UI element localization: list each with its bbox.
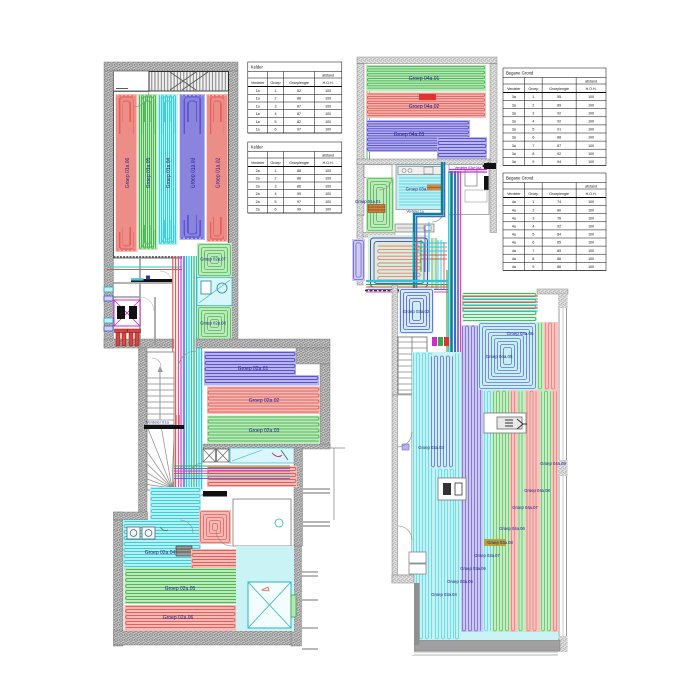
svg-text:4: 4 (532, 224, 534, 228)
svg-text:100: 100 (325, 169, 331, 173)
svg-text:Groeplengte: Groeplengte (289, 161, 309, 165)
svg-text:88: 88 (557, 136, 561, 140)
svg-text:87: 87 (297, 104, 301, 108)
svg-text:100: 100 (588, 257, 594, 261)
svg-text:Kelder: Kelder (251, 144, 264, 149)
svg-text:100: 100 (588, 208, 594, 212)
svg-text:Groep 01a.05: Groep 01a.05 (146, 157, 152, 188)
svg-text:65: 65 (557, 241, 561, 245)
svg-text:Groep: Groep (528, 192, 538, 196)
svg-text:H.O.H.: H.O.H. (323, 161, 334, 165)
svg-text:82: 82 (297, 120, 301, 124)
svg-text:100: 100 (325, 97, 331, 101)
svg-text:3a: 3a (512, 160, 516, 164)
svg-text:100: 100 (588, 152, 594, 156)
svg-text:100: 100 (588, 160, 594, 164)
svg-text:Groep 02a.07: Groep 02a.07 (200, 257, 226, 262)
svg-text:Groep 02a.04: Groep 02a.04 (145, 550, 176, 556)
svg-text:Groep 03a.08: Groep 03a.08 (487, 540, 513, 545)
svg-text:6: 6 (275, 128, 277, 132)
svg-text:100: 100 (325, 208, 331, 212)
svg-text:7: 7 (532, 249, 534, 253)
svg-text:3a: 3a (512, 95, 516, 99)
svg-text:Groeplengte: Groeplengte (549, 192, 569, 196)
svg-text:87: 87 (297, 112, 301, 116)
svg-text:Groep 04a.02: Groep 04a.02 (409, 104, 440, 110)
svg-text:Groep 01a.06: Groep 01a.06 (125, 157, 131, 188)
svg-text:4a: 4a (512, 216, 516, 220)
svg-text:2a: 2a (256, 169, 260, 173)
svg-text:Groep 03a.03: Groep 03a.03 (418, 445, 444, 450)
svg-text:Groep 01a.04: Groep 01a.04 (166, 157, 172, 188)
svg-text:Verdeler 01a: Verdeler 01a (146, 420, 169, 425)
svg-text:Groep 02a.03: Groep 02a.03 (249, 428, 280, 434)
svg-text:2a: 2a (256, 200, 260, 204)
svg-text:Groep 04a.08: Groep 04a.08 (524, 488, 550, 493)
svg-text:4a: 4a (512, 249, 516, 253)
svg-text:Groep 03a.02: Groep 03a.02 (403, 309, 430, 314)
svg-text:Groep 04a.06: Groep 04a.06 (507, 331, 534, 336)
svg-text:Groep 02a.01: Groep 02a.01 (238, 366, 269, 372)
svg-text:1: 1 (275, 169, 277, 173)
svg-text:Groep 04a.07: Groep 04a.07 (512, 505, 538, 510)
svg-text:3: 3 (532, 216, 534, 220)
svg-text:99: 99 (297, 208, 301, 212)
svg-text:1a: 1a (256, 97, 260, 101)
svg-text:3a: 3a (512, 144, 516, 148)
svg-text:100: 100 (588, 119, 594, 123)
svg-text:76: 76 (557, 216, 561, 220)
svg-text:3a: 3a (512, 128, 516, 132)
svg-text:afstand: afstand (322, 154, 334, 158)
svg-text:100: 100 (325, 200, 331, 204)
svg-text:3: 3 (275, 184, 277, 188)
svg-text:5: 5 (532, 128, 534, 132)
svg-text:88: 88 (297, 97, 301, 101)
svg-text:100: 100 (588, 200, 594, 204)
svg-text:5: 5 (532, 233, 534, 237)
svg-text:Begane Grond: Begane Grond (506, 175, 534, 180)
svg-text:89: 89 (557, 103, 561, 107)
svg-text:100: 100 (325, 184, 331, 188)
svg-text:afstand: afstand (585, 185, 597, 189)
svg-text:1a: 1a (256, 128, 260, 132)
svg-text:86: 86 (557, 265, 561, 269)
svg-text:100: 100 (588, 136, 594, 140)
svg-text:100: 100 (325, 192, 331, 196)
svg-text:Verdeler: Verdeler (507, 192, 521, 196)
svg-text:Groep 01a.03: Groep 01a.03 (190, 157, 196, 188)
svg-text:100: 100 (325, 177, 331, 181)
svg-text:Groep: Groep (528, 87, 538, 91)
svg-text:6: 6 (532, 136, 534, 140)
svg-text:2: 2 (532, 103, 534, 107)
svg-text:100: 100 (588, 95, 594, 99)
svg-text:100: 100 (588, 111, 594, 115)
svg-text:100: 100 (588, 241, 594, 245)
svg-text:Groep 03a.05: Groep 03a.05 (447, 579, 473, 584)
svg-text:9: 9 (532, 265, 534, 269)
svg-text:Groep 04a.06: Groep 04a.06 (499, 526, 525, 531)
svg-text:Groep 04a.09: Groep 04a.09 (540, 461, 566, 466)
svg-text:5: 5 (275, 200, 277, 204)
svg-text:Groep: Groep (271, 81, 281, 85)
svg-text:Verdeler: Verdeler (507, 87, 521, 91)
svg-text:Groep 04a.05: Groep 04a.05 (486, 354, 513, 359)
svg-text:100: 100 (588, 144, 594, 148)
svg-text:H.O.H.: H.O.H. (586, 192, 597, 196)
svg-text:92: 92 (557, 152, 561, 156)
svg-text:100: 100 (588, 265, 594, 269)
svg-text:100: 100 (588, 249, 594, 253)
svg-text:Groep 04a.01: Groep 04a.01 (409, 76, 440, 82)
svg-text:afstand: afstand (585, 80, 597, 84)
svg-text:Groep 02a.08: Groep 02a.08 (200, 321, 226, 326)
svg-text:6: 6 (532, 241, 534, 245)
svg-text:5: 5 (275, 120, 277, 124)
svg-text:3a: 3a (512, 111, 516, 115)
svg-text:3a: 3a (512, 136, 516, 140)
svg-text:2: 2 (532, 208, 534, 212)
svg-text:Groep 02a.06: Groep 02a.06 (163, 615, 194, 621)
svg-text:100: 100 (325, 120, 331, 124)
svg-text:Verdeler: Verdeler (251, 161, 265, 165)
svg-text:2a: 2a (256, 177, 260, 181)
svg-text:2a: 2a (256, 184, 260, 188)
svg-text:Groep 03a.06: Groep 03a.06 (460, 566, 486, 571)
svg-text:1: 1 (532, 200, 534, 204)
svg-text:1a: 1a (256, 112, 260, 116)
svg-text:Groep 03a.04: Groep 03a.04 (431, 592, 457, 597)
svg-text:86: 86 (297, 184, 301, 188)
svg-text:86: 86 (557, 257, 561, 261)
svg-text:7: 7 (532, 144, 534, 148)
svg-text:4: 4 (532, 119, 534, 123)
svg-text:8: 8 (532, 152, 534, 156)
svg-text:100: 100 (588, 233, 594, 237)
svg-text:100: 100 (325, 128, 331, 132)
svg-text:1: 1 (532, 95, 534, 99)
svg-text:4: 4 (275, 192, 277, 196)
svg-text:Groep: Groep (271, 161, 281, 165)
svg-text:Groep 01a.01: Groep 01a.01 (355, 199, 381, 204)
svg-text:3a: 3a (512, 119, 516, 123)
svg-text:H.O.H.: H.O.H. (323, 81, 334, 85)
svg-text:100: 100 (325, 112, 331, 116)
svg-text:92: 92 (557, 119, 561, 123)
svg-text:Verdeler: Verdeler (251, 81, 265, 85)
svg-text:52: 52 (297, 89, 301, 93)
svg-text:4a: 4a (512, 257, 516, 261)
svg-text:9: 9 (532, 160, 534, 164)
svg-text:Groep 02a.05: Groep 02a.05 (165, 586, 196, 592)
svg-text:3: 3 (275, 104, 277, 108)
svg-text:2: 2 (275, 97, 277, 101)
svg-text:8: 8 (532, 257, 534, 261)
svg-text:Groeplengte: Groeplengte (549, 87, 569, 91)
svg-text:Begane Grond: Begane Grond (506, 70, 534, 75)
svg-text:4a: 4a (512, 224, 516, 228)
svg-text:80: 80 (557, 208, 561, 212)
svg-text:2: 2 (275, 177, 277, 181)
svg-text:afstand: afstand (322, 74, 334, 78)
svg-text:Groep 03a.07: Groep 03a.07 (474, 553, 500, 558)
svg-text:100: 100 (588, 224, 594, 228)
svg-text:88: 88 (297, 169, 301, 173)
svg-text:H.O.H.: H.O.H. (586, 87, 597, 91)
svg-text:92: 92 (557, 111, 561, 115)
svg-text:3a: 3a (512, 103, 516, 107)
svg-text:100: 100 (588, 103, 594, 107)
svg-text:84: 84 (557, 233, 561, 237)
svg-text:6: 6 (275, 208, 277, 212)
svg-text:Kelder: Kelder (251, 64, 264, 69)
svg-text:87: 87 (557, 144, 561, 148)
svg-text:74: 74 (557, 200, 561, 204)
svg-text:4a: 4a (512, 241, 516, 245)
svg-text:3a: 3a (512, 152, 516, 156)
svg-text:92: 92 (557, 224, 561, 228)
svg-text:100: 100 (588, 216, 594, 220)
svg-text:Groep 04a.03: Groep 04a.03 (394, 132, 425, 138)
svg-text:97: 97 (297, 200, 301, 204)
svg-text:4a: 4a (512, 208, 516, 212)
svg-text:97: 97 (297, 128, 301, 132)
svg-text:91: 91 (557, 128, 561, 132)
svg-text:2a: 2a (256, 192, 260, 196)
svg-text:Groeplengte: Groeplengte (289, 81, 309, 85)
svg-text:4a: 4a (512, 265, 516, 269)
svg-text:94: 94 (557, 160, 561, 164)
svg-text:4a: 4a (512, 200, 516, 204)
svg-text:4: 4 (275, 112, 277, 116)
svg-text:55: 55 (557, 95, 561, 99)
svg-text:4a: 4a (512, 233, 516, 237)
svg-text:100: 100 (325, 104, 331, 108)
svg-text:100: 100 (325, 89, 331, 93)
svg-text:1a: 1a (256, 120, 260, 124)
svg-text:3: 3 (532, 111, 534, 115)
svg-text:Groep 01a.02: Groep 01a.02 (215, 157, 221, 188)
svg-text:100: 100 (588, 128, 594, 132)
svg-text:1a: 1a (256, 89, 260, 93)
svg-text:1: 1 (275, 89, 277, 93)
svg-text:89: 89 (557, 249, 561, 253)
svg-text:2a: 2a (256, 208, 260, 212)
svg-text:1a: 1a (256, 104, 260, 108)
svg-text:88: 88 (297, 177, 301, 181)
svg-text:99: 99 (297, 192, 301, 196)
svg-text:Groep 02a.02: Groep 02a.02 (249, 398, 280, 404)
